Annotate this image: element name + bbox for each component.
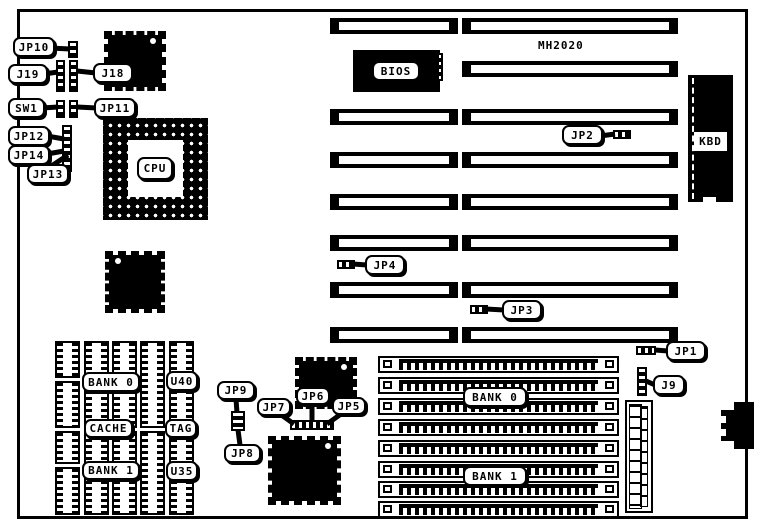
jp7-label: JP7 <box>257 398 291 416</box>
j18-pin-header <box>69 60 78 92</box>
jp1-label: JP1 <box>666 341 706 361</box>
din-connector-notch <box>721 416 726 423</box>
jp12-label: JP12 <box>8 126 50 146</box>
jp8-label: JP8 <box>224 444 261 463</box>
bios-side-pins <box>437 53 443 81</box>
cache-bank0-label: BANK 0 <box>82 372 140 392</box>
isa-slot <box>462 109 678 125</box>
isa-slot <box>462 235 678 251</box>
dip-chip <box>55 381 80 428</box>
j19-pin-header <box>56 60 65 92</box>
jp5-label: JP5 <box>332 397 366 415</box>
simm-socket-row <box>378 356 619 373</box>
simm-socket-row <box>378 419 619 436</box>
isa-slot <box>462 152 678 168</box>
isa-slot <box>462 327 678 343</box>
cache-bank1-label: BANK 1 <box>82 461 140 480</box>
jp6-label: JP6 <box>296 387 330 405</box>
isa-slot <box>330 18 458 34</box>
dip-chip <box>140 431 165 515</box>
jp9-jp8-jumper-block <box>231 411 245 431</box>
jp11-label: JP11 <box>94 98 136 118</box>
jp4-jumper-block <box>337 260 355 269</box>
jp3-jumper-block <box>470 305 488 314</box>
cache-label: CACHE <box>84 419 133 438</box>
jp1-jumper-block <box>636 346 656 355</box>
isa-slot <box>462 61 678 77</box>
kbd-label: KBD <box>694 132 727 151</box>
jp7-jp6-jp5-pin-strip <box>290 420 334 430</box>
isa-slot <box>330 152 458 168</box>
jp11-jumper-block <box>69 100 78 118</box>
isa-slot <box>330 194 458 210</box>
qfp-chip-mid-bottom <box>268 436 341 505</box>
j18-label: J18 <box>93 63 133 83</box>
isa-slot <box>330 235 458 251</box>
isa-slot <box>330 327 458 343</box>
din-connector <box>734 402 754 449</box>
jp14-label: JP14 <box>8 145 50 165</box>
din-connector-notch <box>721 429 726 436</box>
jp9-label: JP9 <box>217 381 255 400</box>
j9-pin-header <box>637 367 647 396</box>
jp3-label: JP3 <box>502 300 542 320</box>
tag-label: TAG <box>165 419 197 438</box>
qfp-chip-below-cpu <box>105 251 165 313</box>
dip-chip <box>55 341 80 378</box>
simm-bank1-label: BANK 1 <box>463 466 527 486</box>
j19-label: J19 <box>8 64 48 84</box>
bios-label: BIOS <box>372 61 420 81</box>
cpu-label: CPU <box>137 157 173 180</box>
u40-label: U40 <box>166 371 198 391</box>
simm-socket-row <box>378 440 619 457</box>
isa-slot <box>462 18 678 34</box>
j9-label: J9 <box>653 375 685 395</box>
jp13-label: JP13 <box>27 164 69 184</box>
power-connector <box>625 400 653 513</box>
isa-slot <box>330 282 458 298</box>
jp4-label: JP4 <box>365 255 405 275</box>
sw1-switch-block <box>56 100 65 118</box>
jp2-label: JP2 <box>562 125 603 145</box>
sw1-label: SW1 <box>8 98 45 118</box>
din-connector-lobe <box>721 410 736 441</box>
dip-chip <box>140 341 165 428</box>
u35-label: U35 <box>166 461 198 481</box>
isa-slot <box>462 194 678 210</box>
jp2-jumper-block <box>613 130 631 139</box>
motherboard-diagram: CPU BIOS MH2020 KBD BANK 0 CACHE BANK 1 … <box>0 0 758 527</box>
simm-bank0-label: BANK 0 <box>463 387 527 407</box>
jp10-jumper-block <box>68 41 78 58</box>
isa-slot <box>330 109 458 125</box>
board-model-text: MH2020 <box>538 39 584 52</box>
dip-chip <box>55 467 80 515</box>
dip-chip <box>55 431 80 464</box>
isa-slot <box>462 282 678 298</box>
jp10-label: JP10 <box>13 37 55 57</box>
simm-socket-row <box>378 501 619 518</box>
